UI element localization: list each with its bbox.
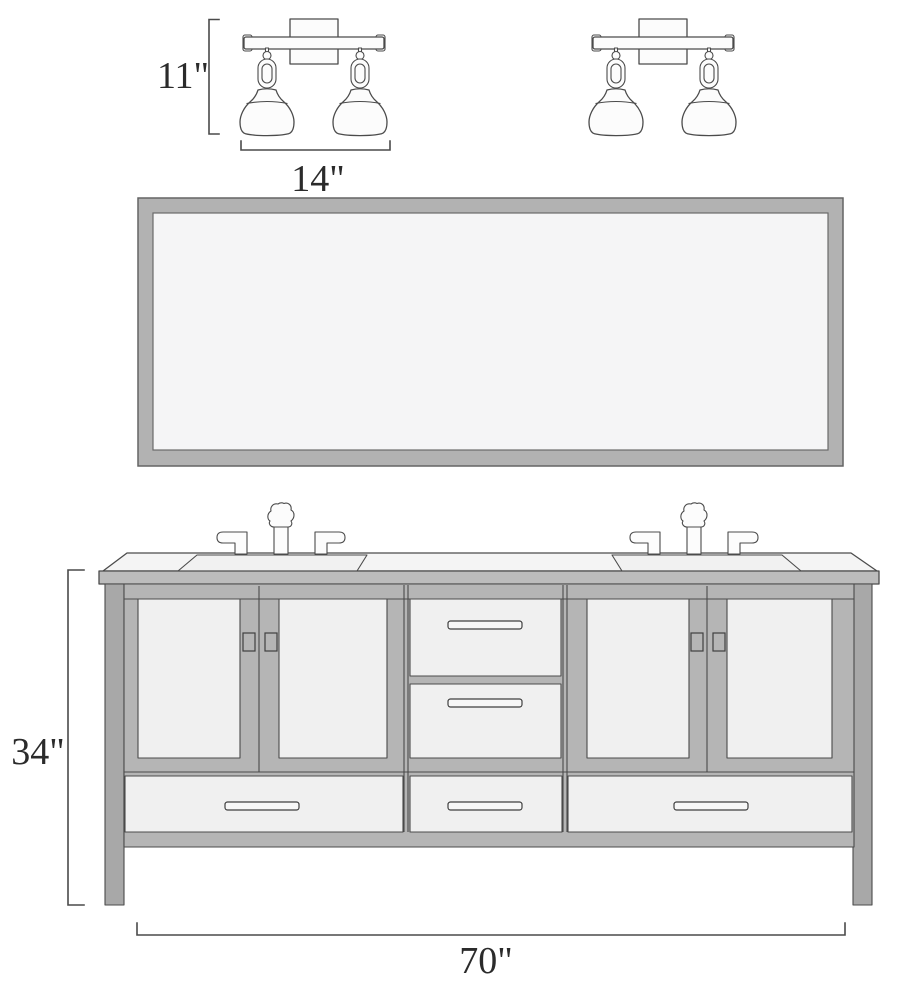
mirror-glass xyxy=(153,213,828,450)
dimension-label-70: 70" xyxy=(459,940,513,982)
dimension-label-11: 11" xyxy=(157,55,209,97)
door-panel-3 xyxy=(587,599,689,758)
door-panel-4 xyxy=(727,599,832,758)
dimension-fixture-width: 14" xyxy=(241,141,390,200)
dimension-label-34: 34" xyxy=(11,731,65,773)
door-knob-1 xyxy=(243,633,255,651)
dimension-bracket-70 xyxy=(137,923,845,935)
upper-drawer-1-handle xyxy=(448,621,522,629)
bottom-drawer-right-handle xyxy=(674,802,748,810)
vanity-elevation-drawing: 11" 14" xyxy=(0,0,898,990)
left-leg xyxy=(105,584,124,905)
right-light-fixture xyxy=(589,19,736,136)
upper-drawer-2 xyxy=(410,684,561,758)
dimension-bracket-34 xyxy=(68,570,84,905)
dimension-vanity-height: 34" xyxy=(11,570,84,905)
left-light-fixture xyxy=(240,19,387,136)
right-faucet xyxy=(630,503,758,554)
dimension-label-14: 14" xyxy=(291,158,345,200)
bottom-drawer-left-handle xyxy=(225,802,299,810)
right-sink xyxy=(612,555,801,571)
countertop-front-edge xyxy=(99,571,879,584)
door-knob-3 xyxy=(691,633,703,651)
right-leg xyxy=(853,584,872,905)
upper-drawer-2-handle xyxy=(448,699,522,707)
dimension-vanity-width: 70" xyxy=(137,923,845,982)
bottom-drawer-center-handle xyxy=(448,802,522,810)
door-knob-2 xyxy=(265,633,277,651)
left-faucet xyxy=(217,503,345,554)
dimension-bracket-11 xyxy=(209,20,219,135)
door-knob-4 xyxy=(713,633,725,651)
door-panel-1 xyxy=(138,599,240,758)
drawing-canvas: 11" 14" xyxy=(0,0,898,990)
dimension-bracket-14 xyxy=(241,141,390,150)
mirror xyxy=(138,198,843,466)
upper-drawer-1 xyxy=(410,599,561,676)
dimension-fixture-height: 11" xyxy=(157,20,219,135)
vanity-cabinet xyxy=(99,503,879,905)
door-panel-2 xyxy=(279,599,387,758)
left-sink xyxy=(178,555,367,571)
